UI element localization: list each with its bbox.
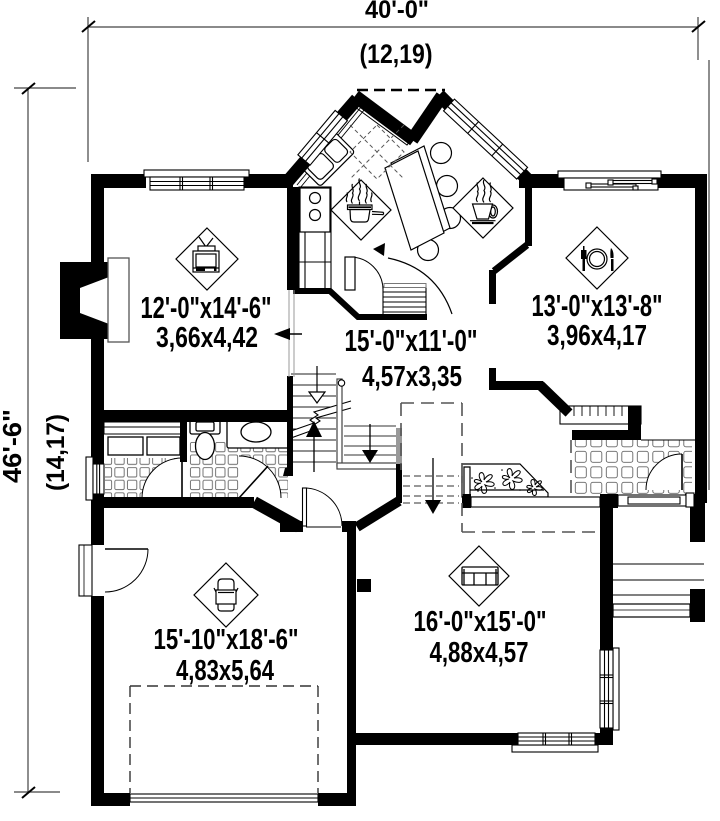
svg-text:(14,17): (14,17) [42, 414, 70, 491]
svg-text:4,57x3,35: 4,57x3,35 [362, 361, 462, 393]
svg-text:3,96x4,17: 3,96x4,17 [547, 320, 647, 352]
svg-text:40'-0": 40'-0" [365, 0, 429, 24]
svg-text:16'-0"x15'-0": 16'-0"x15'-0" [414, 606, 547, 638]
svg-text:4,83x5,64: 4,83x5,64 [176, 655, 274, 687]
svg-text:15'-0"x11'-0": 15'-0"x11'-0" [345, 323, 478, 358]
svg-text:13'-0"x13'-8": 13'-0"x13'-8" [532, 288, 663, 323]
svg-text:3,66x4,42: 3,66x4,42 [156, 322, 258, 354]
svg-text:12'-0"x14'-6": 12'-0"x14'-6" [141, 290, 272, 325]
svg-text:4,88x4,57: 4,88x4,57 [430, 637, 529, 669]
svg-text:46'-6": 46'-6" [0, 409, 27, 483]
svg-text:(12,19): (12,19) [360, 39, 433, 69]
svg-text:15'-10"x18'-6": 15'-10"x18'-6" [154, 624, 299, 656]
